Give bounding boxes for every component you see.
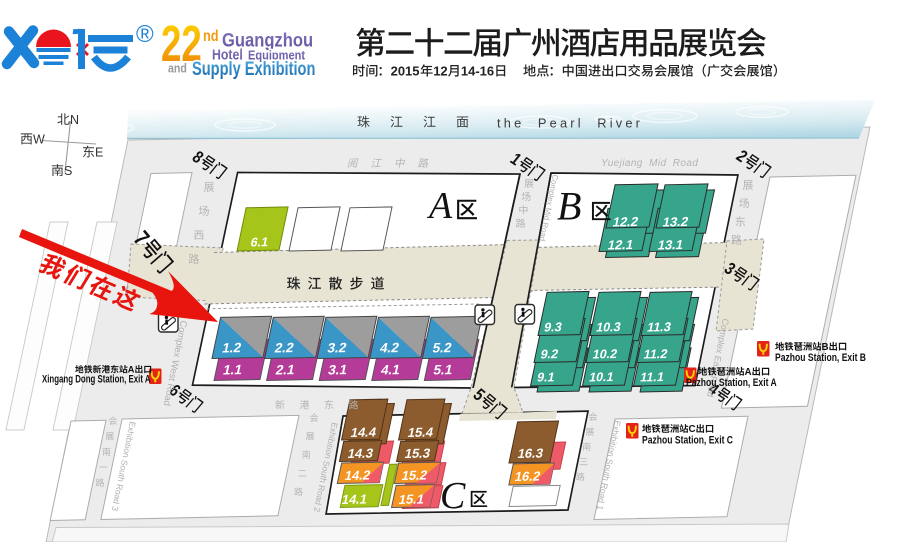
svg-text:14.4: 14.4	[349, 425, 378, 440]
svg-text:E: E	[95, 146, 103, 160]
svg-text:13.2: 13.2	[661, 214, 689, 229]
svg-text:Pazhou Station, Exit A: Pazhou Station, Exit A	[686, 377, 777, 389]
svg-text:14.3: 14.3	[346, 446, 374, 461]
svg-text:S: S	[64, 164, 72, 178]
svg-text:5.2: 5.2	[431, 340, 453, 355]
svg-text:15.2: 15.2	[400, 468, 428, 483]
svg-text:4.1: 4.1	[380, 362, 402, 377]
svg-text:1.2: 1.2	[221, 340, 243, 355]
svg-text:Pazhou Station, Exit C: Pazhou Station, Exit C	[642, 435, 733, 447]
svg-text:nd: nd	[203, 28, 219, 46]
svg-text:12.2: 12.2	[611, 214, 639, 229]
svg-text:1.1: 1.1	[222, 362, 244, 377]
svg-text:B: B	[557, 184, 581, 229]
svg-text:3.2: 3.2	[326, 340, 348, 355]
svg-text:®: ®	[136, 21, 154, 48]
svg-text:2015: 2015	[391, 64, 420, 79]
svg-text:12: 12	[433, 64, 447, 79]
svg-text:Xingang Dong Station, Exit A: Xingang Dong Station, Exit A	[42, 373, 151, 386]
svg-text:Pazhou Station, Exit B: Pazhou Station, Exit B	[775, 352, 866, 364]
svg-text:Supply Exhibition: Supply Exhibition	[192, 57, 315, 80]
svg-text:4.2: 4.2	[379, 340, 401, 355]
svg-text:11.3: 11.3	[646, 320, 673, 334]
svg-text:W: W	[33, 133, 45, 147]
svg-text:16.3: 16.3	[516, 446, 544, 461]
svg-text:and: and	[168, 62, 187, 76]
svg-text:10.2: 10.2	[591, 347, 618, 361]
svg-text:11.1: 11.1	[639, 370, 666, 384]
svg-text:9.1: 9.1	[536, 370, 556, 384]
svg-text:15.1: 15.1	[397, 492, 425, 507]
svg-text:13.1: 13.1	[656, 237, 684, 252]
svg-text:12.1: 12.1	[606, 237, 634, 252]
svg-text:14.2: 14.2	[343, 468, 371, 483]
svg-text:2.2: 2.2	[273, 340, 295, 355]
svg-text:14-16: 14-16	[461, 64, 494, 79]
svg-text:11.2: 11.2	[642, 347, 669, 361]
svg-text:C: C	[440, 475, 466, 517]
svg-text:15.4: 15.4	[406, 425, 435, 440]
svg-text:6.1: 6.1	[249, 235, 269, 249]
svg-text:the Pearl River: the Pearl River	[497, 116, 643, 131]
svg-text:10.1: 10.1	[588, 370, 615, 384]
svg-text:Yuejiang Mid Road: Yuejiang Mid Road	[601, 158, 698, 169]
svg-text:5.1: 5.1	[432, 362, 454, 377]
svg-text:16.2: 16.2	[513, 469, 541, 484]
svg-text:2.1: 2.1	[274, 362, 296, 377]
svg-text:3.1: 3.1	[327, 362, 349, 377]
svg-text:15.3: 15.3	[403, 446, 431, 461]
svg-text:10.3: 10.3	[595, 320, 622, 334]
svg-text:9.2: 9.2	[539, 347, 559, 361]
svg-text:A: A	[426, 185, 453, 227]
svg-text:C: C	[689, 424, 696, 435]
svg-text:14.1: 14.1	[340, 492, 368, 507]
svg-text:9.3: 9.3	[543, 320, 563, 334]
svg-text:N: N	[70, 113, 79, 127]
